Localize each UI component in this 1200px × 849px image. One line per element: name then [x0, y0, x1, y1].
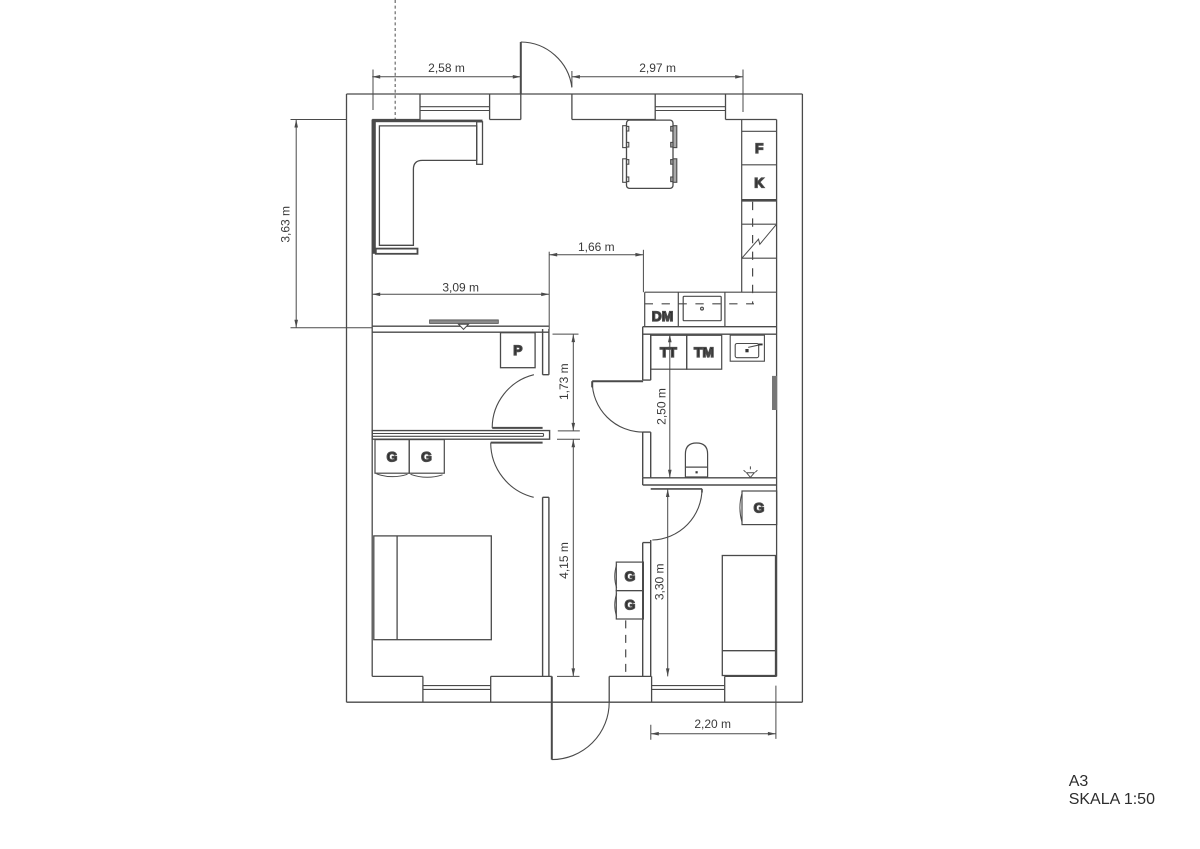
svg-text:2,97 m: 2,97 m [639, 61, 676, 75]
svg-text:G: G [754, 501, 765, 516]
svg-text:3,63 m: 3,63 m [279, 206, 293, 243]
svg-text:2,58 m: 2,58 m [428, 61, 465, 75]
svg-text:1,66 m: 1,66 m [578, 240, 615, 254]
svg-text:DM: DM [652, 309, 673, 324]
svg-text:SKALA 1:50: SKALA 1:50 [1069, 791, 1155, 808]
svg-text:G: G [387, 450, 398, 465]
svg-text:2,20 m: 2,20 m [694, 717, 731, 731]
svg-text:K: K [754, 176, 764, 191]
svg-text:TT: TT [660, 345, 677, 360]
svg-text:G: G [625, 598, 636, 613]
svg-text:G: G [625, 569, 636, 584]
svg-text:TM: TM [694, 345, 714, 360]
svg-text:4,15 m: 4,15 m [557, 542, 571, 579]
svg-text:G: G [421, 450, 432, 465]
svg-text:A3: A3 [1069, 773, 1089, 790]
svg-text:3,30 m: 3,30 m [652, 563, 666, 600]
svg-text:3,09 m: 3,09 m [442, 281, 479, 295]
svg-text:1,73 m: 1,73 m [557, 363, 571, 400]
svg-text:F: F [755, 141, 763, 156]
svg-text:P: P [513, 343, 522, 358]
svg-text:2,50 m: 2,50 m [654, 388, 668, 425]
